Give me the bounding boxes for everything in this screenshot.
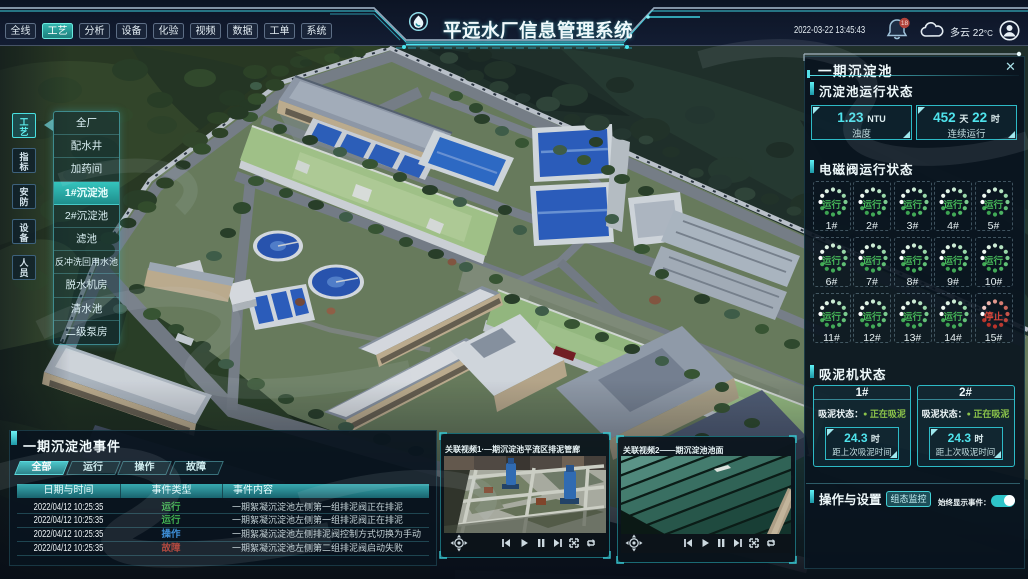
svg-text:18: 18 xyxy=(901,20,909,27)
